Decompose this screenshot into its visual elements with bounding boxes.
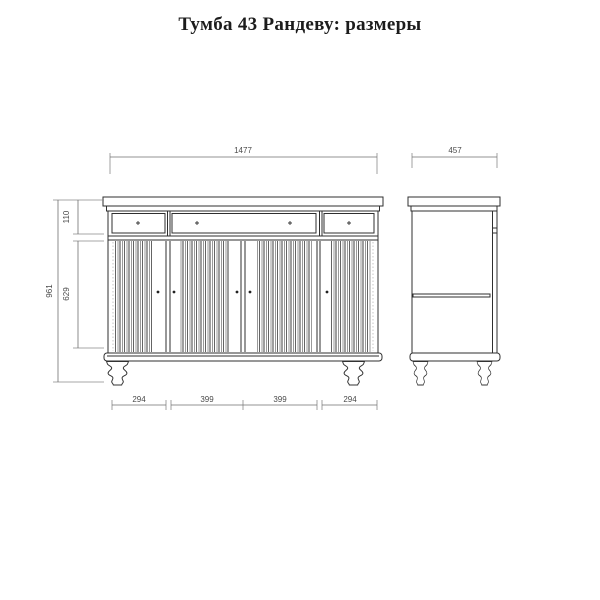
dim-door-height: 629 xyxy=(62,241,104,348)
dim-label-overall-width: 1477 xyxy=(234,146,252,155)
dim-drawer-height: 110 xyxy=(62,200,104,234)
front-base xyxy=(104,353,382,361)
dim-label-segment-4: 294 xyxy=(343,395,357,404)
door-panel-1 xyxy=(115,241,153,352)
dimension-drawing: 1477 457 961 110 xyxy=(0,0,600,600)
dim-label-door-height: 629 xyxy=(62,287,71,301)
dim-bottom-segments: 294 399 399 294 xyxy=(112,395,377,410)
side-countertop xyxy=(408,197,500,211)
leg-shape xyxy=(413,362,428,386)
side-view xyxy=(408,197,500,385)
dim-label-segment-2: 399 xyxy=(200,395,214,404)
door-panel-3 xyxy=(256,241,312,352)
dim-label-overall-height: 961 xyxy=(45,284,54,298)
dim-overall-width: 1477 xyxy=(110,146,377,174)
front-door-section xyxy=(113,241,373,352)
leg-shape xyxy=(477,362,492,386)
front-drawer-row xyxy=(108,211,378,240)
dim-label-drawer-height: 110 xyxy=(62,210,71,223)
dim-label-overall-depth: 457 xyxy=(448,146,462,155)
front-legs xyxy=(107,362,365,386)
side-drawer-edge xyxy=(493,228,498,233)
side-body xyxy=(412,211,497,353)
side-base xyxy=(410,353,500,361)
dim-label-segment-1: 294 xyxy=(132,395,146,404)
leg-shape xyxy=(107,362,129,386)
leg-shape xyxy=(343,362,365,386)
drawer-middle xyxy=(172,214,316,234)
front-view xyxy=(103,197,383,385)
side-legs xyxy=(413,362,492,386)
door-panel-2 xyxy=(180,241,230,352)
front-countertop xyxy=(103,197,383,211)
page: Тумба 43 Рандеву: размеры xyxy=(0,0,600,600)
dim-overall-height: 961 xyxy=(45,200,104,382)
dim-label-segment-3: 399 xyxy=(273,395,287,404)
drawer-knob xyxy=(136,221,351,225)
door-panel-4 xyxy=(331,241,371,352)
side-shelf xyxy=(413,294,490,297)
dim-overall-depth: 457 xyxy=(412,146,497,168)
